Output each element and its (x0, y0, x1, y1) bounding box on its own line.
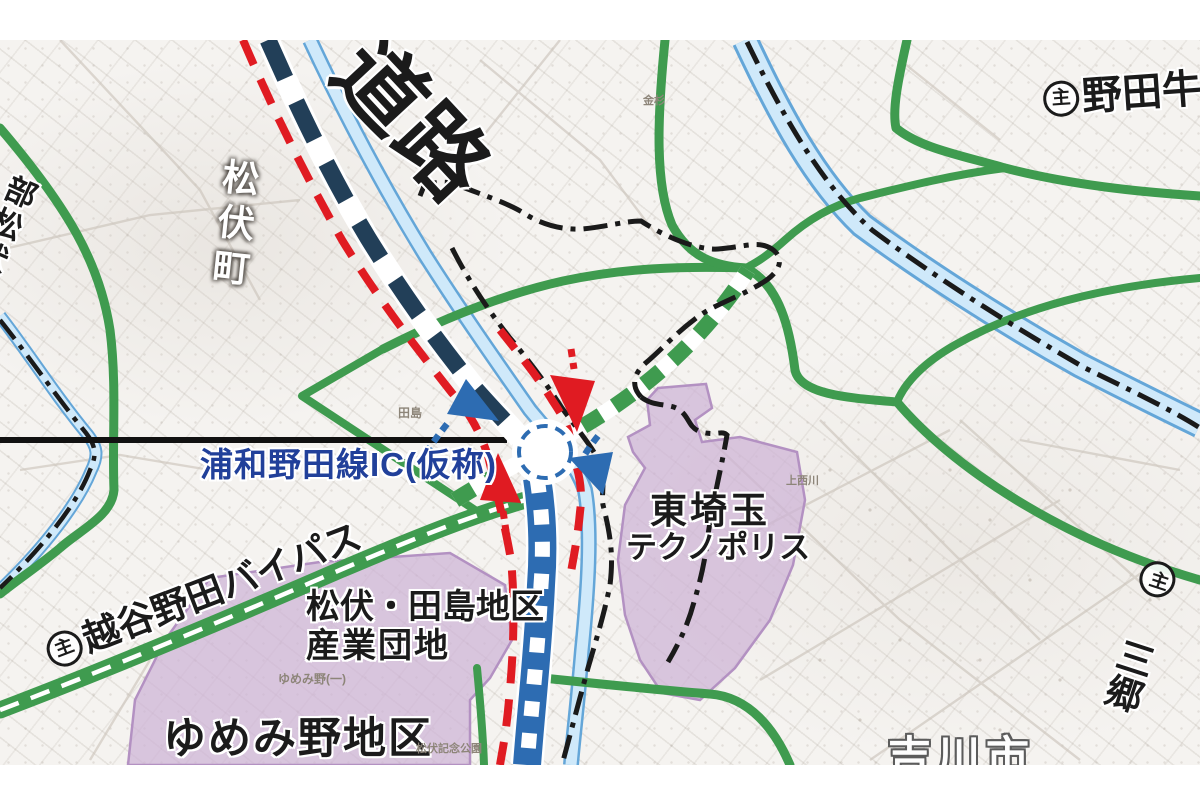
base-label-kaminishikawa: 上西川 (786, 472, 819, 488)
district-label-tajima-line1: 松伏・田島地区 (306, 590, 544, 626)
road-vertical-north (659, 40, 746, 268)
district-label-tajima-line2: 産業団地 (306, 629, 450, 665)
map-image: 道路 松伏町 部松伏線 主 野田牛久 主 三郷 浦和野田線IC(仮称) 主 越谷… (0, 40, 1200, 765)
district-label-technopolis-line2: テクノポリス (626, 532, 810, 565)
ic-circle (519, 426, 571, 478)
ramp-red-arrow-down-tail (571, 349, 574, 369)
ramp-red-arrow-up-tail (503, 511, 506, 531)
road-river-crossing-branch (746, 168, 1005, 268)
route-name: 野田牛久 (1081, 65, 1200, 118)
interchange-symbol (512, 419, 578, 485)
river-west-edge (0, 316, 96, 590)
base-label-tajima: 田島 (398, 404, 422, 421)
interchange-label: 浦和野田線IC(仮称) (200, 448, 497, 483)
base-label-yumemino-1: ゆめみ野(一) (278, 670, 346, 687)
river-west-fill (0, 316, 96, 590)
district-label-technopolis-line1: 東埼玉 (650, 492, 770, 531)
base-label-matsubushi-park: 松伏記念公園 (416, 740, 482, 756)
base-label-kanasugi: 金杉 (643, 92, 665, 108)
city-label-yoshikawa: 吉川市 (888, 736, 1035, 765)
screenshot-canvas: 道路 松伏町 部松伏線 主 野田牛久 主 三郷 浦和野田線IC(仮称) 主 越谷… (0, 0, 1200, 800)
route-marker-icon: 主 (1042, 79, 1080, 117)
district-label-yumemino: ゆめみ野地区 (163, 717, 433, 762)
map-overlay-graphics (0, 40, 1200, 765)
